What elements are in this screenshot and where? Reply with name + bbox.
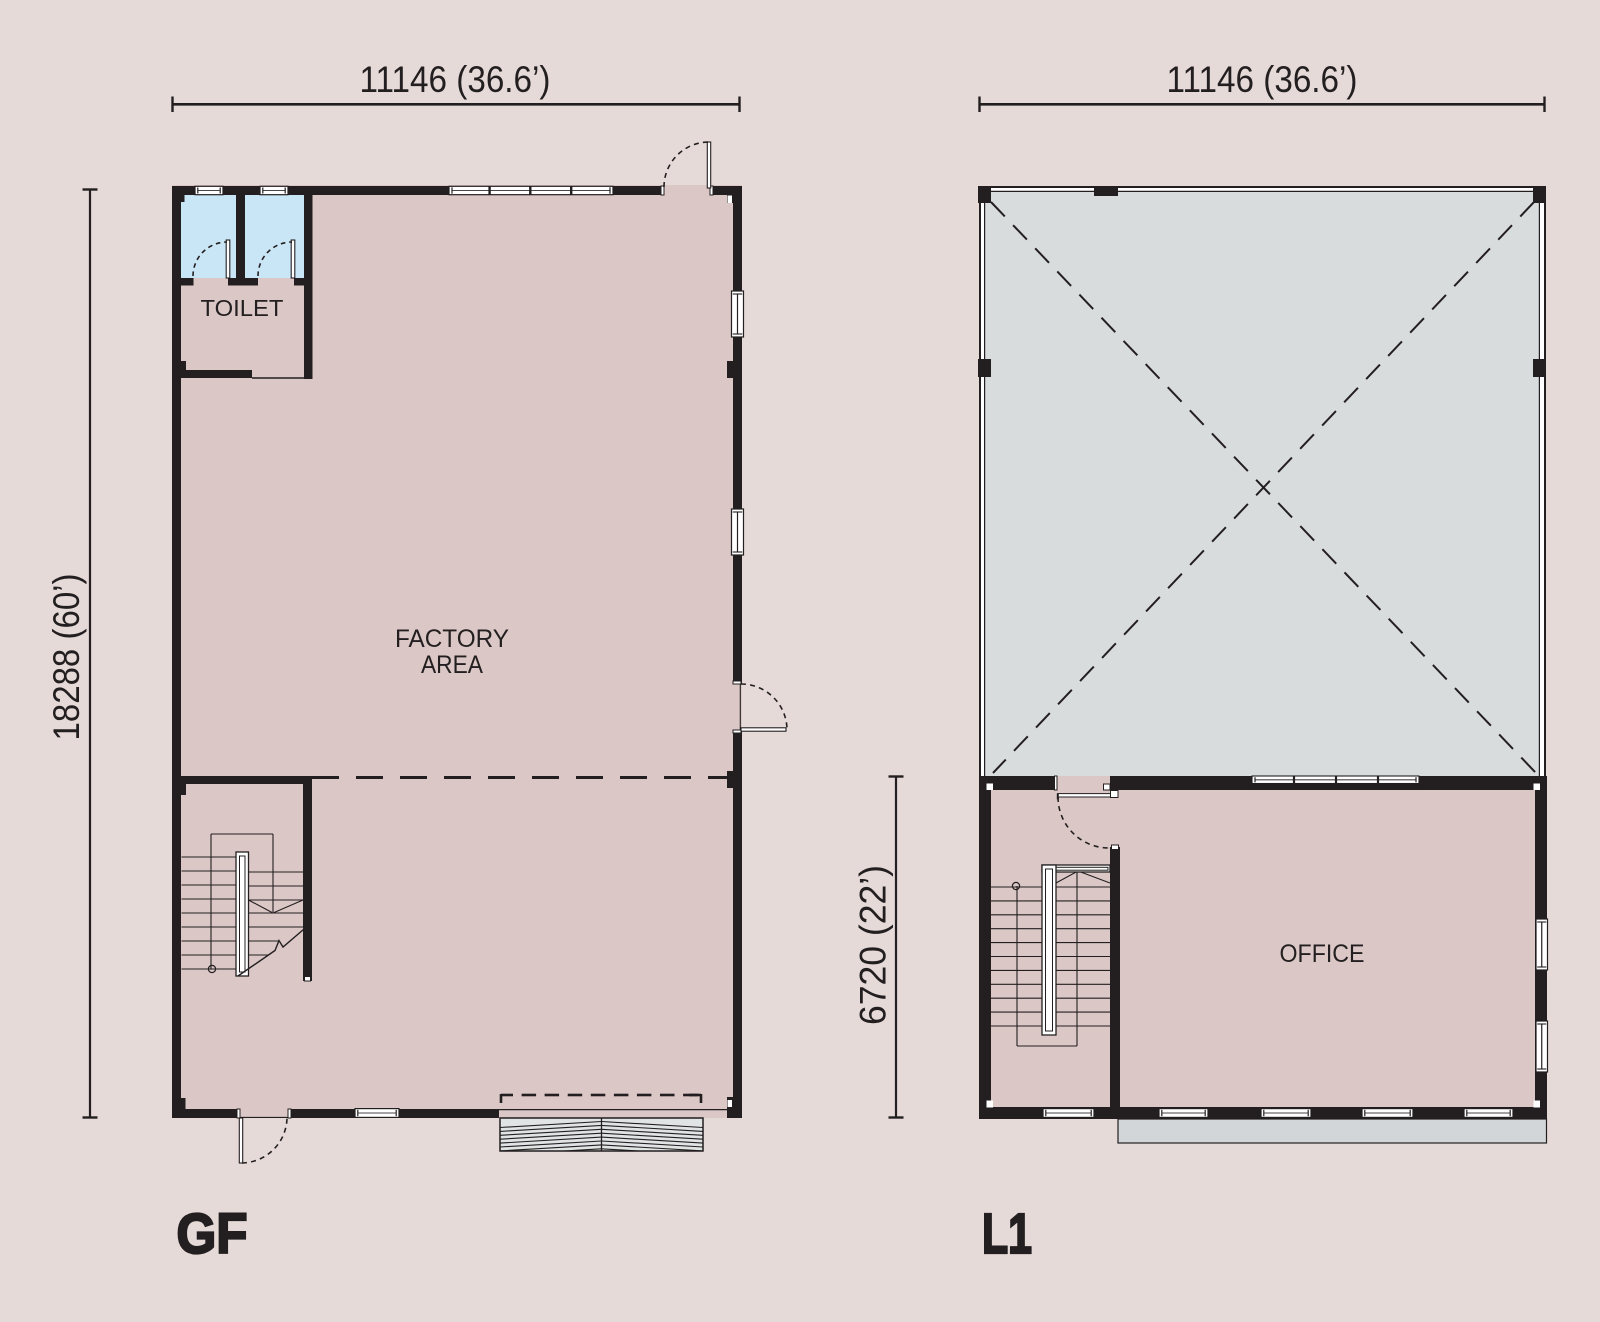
svg-text:GF: GF (177, 1202, 248, 1266)
svg-text:18288 (60’): 18288 (60’) (46, 574, 87, 741)
svg-text:FACTORY: FACTORY (395, 625, 509, 653)
svg-text:11146 (36.6’): 11146 (36.6’) (360, 59, 551, 100)
svg-text:TOILET: TOILET (201, 295, 284, 321)
svg-text:6720 (22’): 6720 (22’) (853, 865, 894, 1025)
svg-text:11146 (36.6’): 11146 (36.6’) (1167, 59, 1358, 100)
svg-text:AREA: AREA (421, 651, 483, 679)
svg-text:OFFICE: OFFICE (1280, 940, 1365, 968)
svg-text:L1: L1 (982, 1202, 1032, 1266)
